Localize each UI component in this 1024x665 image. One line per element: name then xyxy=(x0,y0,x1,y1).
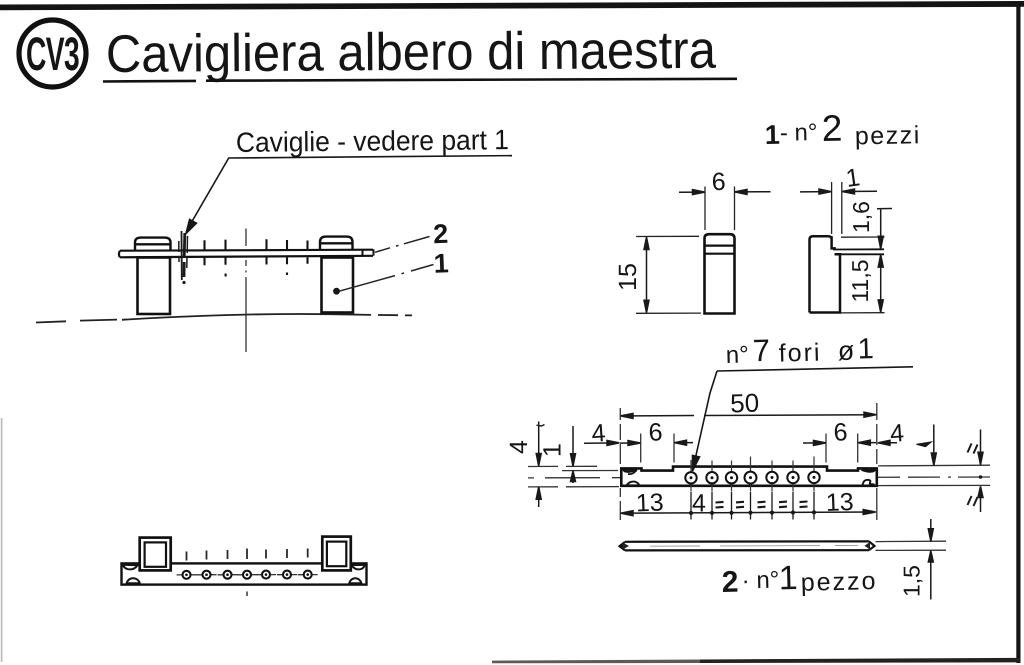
svg-text:2: 2 xyxy=(433,219,449,250)
svg-text:2: 2 xyxy=(721,566,739,599)
svg-text:50: 50 xyxy=(730,388,760,419)
svg-text:pezzi: pezzi xyxy=(855,121,921,150)
svg-text:1: 1 xyxy=(778,559,798,597)
svg-text:4: 4 xyxy=(505,440,533,454)
svg-text:- n°: - n° xyxy=(780,119,818,147)
svg-text:1: 1 xyxy=(539,443,567,457)
svg-text:6: 6 xyxy=(833,418,848,447)
svg-text:11,5: 11,5 xyxy=(847,259,873,302)
svg-text:2: 2 xyxy=(821,108,842,149)
svg-text:13: 13 xyxy=(825,488,854,517)
svg-text:13: 13 xyxy=(635,489,664,518)
svg-text:4: 4 xyxy=(889,419,905,448)
svg-text:1: 1 xyxy=(765,120,781,150)
svg-text:CV3: CV3 xyxy=(26,27,79,80)
svg-text:1,6: 1,6 xyxy=(848,201,874,233)
svg-text:7: 7 xyxy=(752,333,770,368)
svg-text:n°: n° xyxy=(725,341,749,369)
svg-text:fori: fori xyxy=(778,339,821,368)
svg-text:6: 6 xyxy=(711,168,726,196)
svg-text:4: 4 xyxy=(692,490,706,518)
svg-text:pezzo: pezzo xyxy=(800,567,877,597)
svg-text:Caviglie - vedere part 1: Caviglie - vedere part 1 xyxy=(236,124,509,158)
svg-text:Cavigliera albero di maestra: Cavigliera albero di maestra xyxy=(106,21,717,84)
svg-text:· n°: · n° xyxy=(741,567,779,595)
svg-text:6: 6 xyxy=(648,418,663,447)
svg-text:1: 1 xyxy=(857,333,874,365)
svg-text:15: 15 xyxy=(614,263,642,291)
svg-text:1: 1 xyxy=(433,248,449,279)
svg-text:ø: ø xyxy=(837,336,854,366)
svg-text:1,5: 1,5 xyxy=(899,565,925,597)
